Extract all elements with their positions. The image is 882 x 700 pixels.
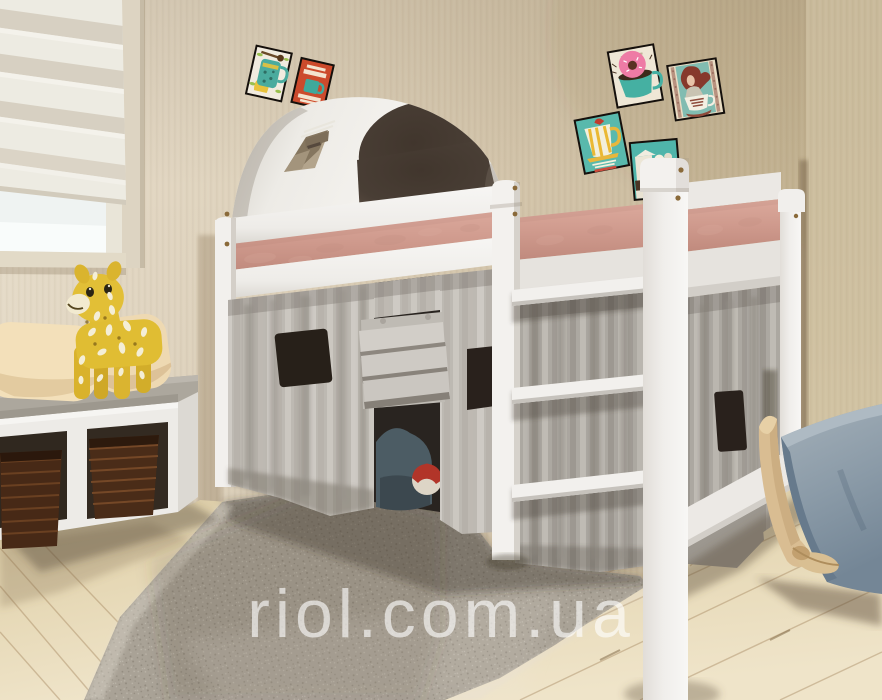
svg-text:riol.com.ua: riol.com.ua bbox=[247, 576, 635, 652]
